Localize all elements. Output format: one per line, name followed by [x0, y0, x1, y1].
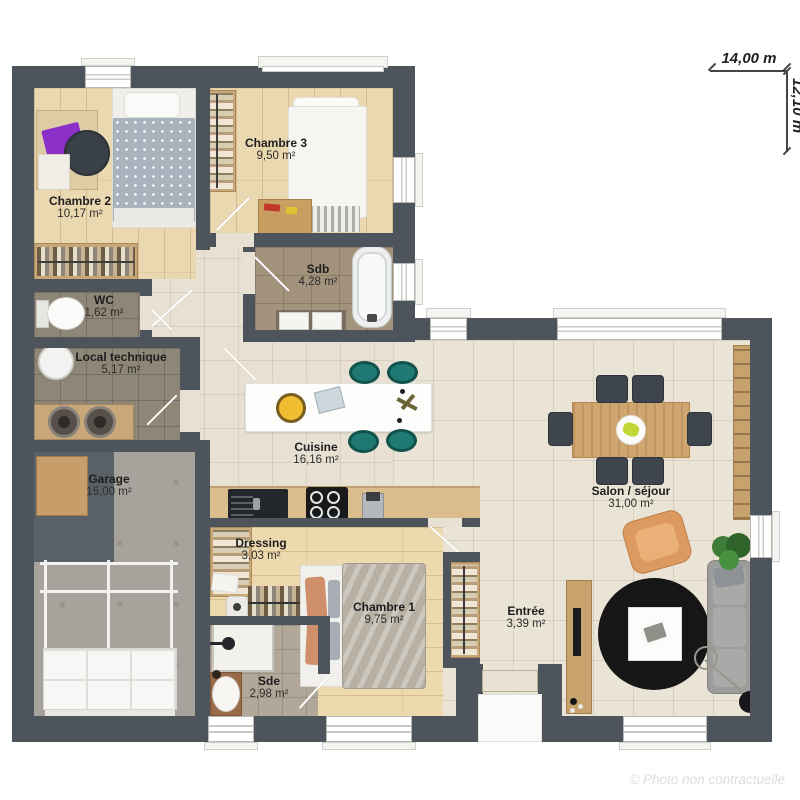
room-name: Sdb	[299, 262, 338, 276]
dining-chair	[548, 412, 573, 446]
sde-soap	[212, 670, 221, 679]
dining-chair	[632, 375, 664, 403]
room-label-sde: Sde 2,98 m²	[250, 674, 289, 702]
room-label-dressing: Dressing 3,03 m²	[235, 536, 286, 564]
room-name: Chambre 3	[245, 136, 307, 150]
wall-sdb-south	[243, 330, 415, 342]
sde-shower	[212, 622, 274, 672]
room-area: 2,98 m²	[250, 688, 289, 702]
local-technique-door-opening	[180, 390, 200, 432]
dining-chair	[632, 457, 664, 485]
dryer-machine-door	[94, 416, 106, 428]
garage-rail-middle	[107, 560, 110, 648]
washing-machine-door	[58, 416, 70, 428]
dimension-height-label: 12,10 m	[789, 78, 800, 133]
room-label-local-technique: Local technique 5,17 m²	[75, 350, 166, 378]
sdb-window-sill	[415, 259, 423, 305]
dining-chair	[596, 375, 628, 403]
chambre3-closet-rod	[216, 94, 218, 188]
chambre2-desk-chair	[64, 130, 110, 176]
chambre3-window	[262, 66, 384, 72]
wall-wc-south	[34, 337, 200, 348]
chambre2-wardrobe-rod	[38, 261, 134, 263]
room-area: 4,28 m²	[299, 276, 338, 290]
dressing-clock	[233, 603, 241, 611]
salon-east-window	[750, 515, 772, 558]
room-area: 9,75 m²	[353, 614, 415, 628]
sdb-door-opening	[243, 252, 255, 294]
fruit-bowl	[276, 393, 306, 423]
chambre2-window-sill	[81, 58, 135, 66]
tv-screen	[573, 608, 581, 656]
hall-window-sill	[426, 308, 471, 318]
room-label-sdb: Sdb 4,28 m²	[299, 262, 338, 290]
wall-chambre2-south	[34, 279, 146, 292]
room-area: 16,16 m²	[293, 454, 338, 468]
room-label-chambre1: Chambre 1 9,75 m²	[353, 600, 415, 628]
chambre1-window	[326, 716, 412, 742]
dining-chair	[687, 412, 712, 446]
room-name: Salon / séjour	[592, 484, 671, 498]
room-area: 3,03 m²	[235, 550, 286, 564]
chambre2-pillow	[124, 92, 180, 118]
garage-workbench	[36, 456, 88, 516]
bar-stool	[387, 361, 418, 384]
sde-window-sill	[204, 742, 258, 750]
chambre3-east-window	[393, 157, 415, 203]
room-area: 5,17 m²	[75, 364, 166, 378]
room-area: 9,50 m²	[245, 150, 307, 164]
chambre2-window	[85, 66, 131, 88]
entree-closet-rod	[463, 566, 465, 654]
wc-toilet-bowl	[47, 297, 85, 330]
entry-step	[478, 694, 542, 742]
wall-garage-north	[12, 440, 200, 452]
wall-left	[12, 66, 34, 742]
room-name: Chambre 1	[353, 600, 415, 614]
bar-stool	[349, 361, 380, 384]
room-label-cuisine: Cuisine 16,16 m²	[293, 440, 338, 468]
room-area: 31,00 m²	[592, 498, 671, 512]
room-label-salon: Salon / séjour 31,00 m²	[592, 484, 671, 512]
bar-stool	[348, 430, 379, 453]
salon-north-window	[557, 318, 722, 340]
room-name: Cuisine	[293, 440, 338, 454]
room-name: Chambre 2	[49, 194, 111, 208]
wall-chambre-divider	[196, 88, 210, 250]
salon-north-window-sill	[553, 308, 726, 318]
kitchen-faucet	[253, 498, 260, 510]
garage-rail-left	[44, 560, 47, 648]
room-name: Sde	[250, 674, 289, 688]
chambre3-desk-item-yellow	[286, 207, 297, 214]
cooktop-burner	[327, 491, 340, 504]
room-name: WC	[85, 293, 124, 307]
kitchen-sink-drainer	[231, 492, 253, 516]
garage-door	[43, 648, 177, 710]
garage-rail-bottom	[40, 590, 178, 593]
room-label-chambre3: Chambre 3 9,50 m²	[245, 136, 307, 164]
garage-rail-top	[40, 562, 178, 565]
room-label-wc: WC 1,62 m²	[85, 293, 124, 321]
wall-dressing-south	[210, 616, 330, 625]
room-name: Garage	[86, 472, 131, 486]
room-area: 10,17 m²	[49, 208, 111, 222]
chambre1-window-sill	[322, 742, 416, 750]
chambre3-east-window-sill	[415, 153, 423, 207]
room-name: Local technique	[75, 350, 166, 364]
chambre1-pillow-gray	[328, 580, 340, 618]
dining-chair	[596, 457, 628, 485]
sde-shower-head	[222, 637, 235, 650]
room-area: 3,39 m²	[507, 618, 546, 632]
chambre3-door-opening	[216, 233, 254, 247]
dimension-width-line	[710, 70, 788, 72]
watermark: © Photo non contractuelle	[610, 772, 785, 787]
chambre2-blanket	[113, 118, 195, 222]
room-label-entree: Entrée 3,39 m²	[507, 604, 546, 632]
wall-sde-east	[318, 616, 330, 674]
sdb-bathtub-inner	[357, 252, 387, 322]
island-knob-top	[400, 389, 405, 394]
room-label-chambre2: Chambre 2 10,17 m²	[49, 194, 111, 222]
dimension-tick	[783, 147, 791, 155]
chambre2-nightstand	[38, 154, 70, 190]
console-vase	[570, 698, 577, 705]
sde-basin	[212, 676, 240, 712]
dimension-height-line	[786, 70, 788, 152]
plant	[719, 550, 739, 570]
room-name: Entrée	[507, 604, 546, 618]
room-label-garage: Garage 15,00 m²	[86, 472, 131, 500]
sdb-sink-right	[312, 312, 342, 330]
chambre2-bed-foot	[114, 208, 194, 226]
wall-entree-west	[443, 552, 451, 668]
wc-door-opening	[140, 296, 152, 330]
salon-east-window-sill	[772, 511, 780, 562]
bar-stool	[386, 429, 417, 452]
wall-garage-east	[195, 440, 210, 716]
cooktop-burner	[310, 491, 323, 504]
salon-bookshelf	[733, 345, 751, 520]
hall-window	[430, 318, 467, 340]
room-name: Dressing	[235, 536, 286, 550]
floor-plan: Chambre 2 10,17 m² Chambre 3 9,50 m² Sdb…	[0, 0, 800, 800]
console-dot	[578, 704, 583, 709]
chambre3-desk-item-red	[264, 203, 281, 211]
sdb-sink-left	[279, 312, 309, 330]
dimension-width-label: 14,00 m	[710, 50, 788, 67]
chambre1-pillow	[305, 576, 328, 619]
sdb-window	[393, 263, 415, 301]
sdb-bathtub-faucet	[367, 314, 377, 322]
garage-rail-right	[170, 560, 173, 648]
coffee-machine-top	[366, 492, 380, 501]
salon-south-window	[623, 716, 707, 742]
kitchen-door-opening	[428, 518, 462, 527]
sde-window	[208, 716, 254, 742]
room-area: 1,62 m²	[85, 307, 124, 321]
island-knob-bottom	[397, 418, 402, 423]
dressing-papers	[211, 572, 239, 593]
room-area: 15,00 m²	[86, 486, 131, 500]
wall-closet-stub-top	[445, 552, 480, 562]
front-door	[482, 670, 538, 692]
sofa-cushion	[713, 607, 746, 647]
local-technique-boiler	[38, 344, 74, 380]
console-dot	[570, 708, 575, 713]
salon-south-window-sill	[619, 742, 711, 750]
